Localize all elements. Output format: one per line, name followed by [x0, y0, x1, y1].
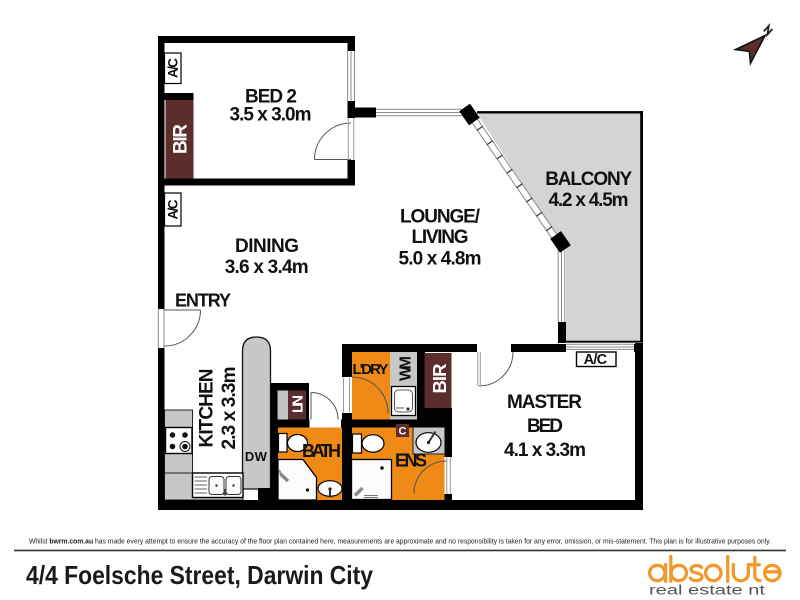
svg-text:BED: BED	[527, 416, 563, 437]
svg-text:DW: DW	[245, 449, 268, 464]
svg-text:ENS: ENS	[395, 451, 427, 471]
svg-text:WM: WM	[398, 356, 415, 381]
svg-text:MASTER: MASTER	[507, 392, 582, 413]
svg-text:L'DRY: L'DRY	[353, 361, 389, 378]
svg-text:Whilst bwrm.com.au has made ev: Whilst bwrm.com.au has made every attemp…	[29, 537, 771, 546]
svg-text:LIVING: LIVING	[412, 227, 469, 248]
svg-text:4.1 x 3.3m: 4.1 x 3.3m	[504, 440, 586, 461]
svg-text:3.5 x 3.0m: 3.5 x 3.0m	[230, 105, 312, 126]
svg-text:BIR: BIR	[171, 124, 192, 154]
svg-text:BALCONY: BALCONY	[545, 169, 632, 190]
svg-text:A/C: A/C	[166, 199, 181, 219]
svg-text:LIN: LIN	[290, 395, 307, 413]
svg-text:DINING: DINING	[235, 236, 299, 257]
svg-text:A/C: A/C	[584, 352, 608, 368]
svg-text:BATH: BATH	[302, 441, 341, 461]
svg-text:2.3 x 3.3m: 2.3 x 3.3m	[219, 367, 240, 450]
svg-text:5.0 x 4.8m: 5.0 x 4.8m	[399, 249, 482, 270]
svg-text:real estate nt: real estate nt	[649, 583, 765, 598]
svg-text:KITCHEN: KITCHEN	[197, 369, 218, 448]
svg-text:4.2 x 4.5m: 4.2 x 4.5m	[549, 190, 629, 211]
svg-text:3.6 x 3.4m: 3.6 x 3.4m	[225, 257, 309, 278]
svg-text:LOUNGE/: LOUNGE/	[400, 207, 481, 228]
svg-text:BIR: BIR	[429, 364, 450, 394]
svg-text:A/C: A/C	[166, 58, 181, 78]
svg-text:C: C	[399, 426, 407, 438]
svg-text:ENTRY: ENTRY	[175, 291, 231, 311]
svg-text:4/4 Foelsche Street, Darwin Ci: 4/4 Foelsche Street, Darwin City	[26, 560, 373, 590]
